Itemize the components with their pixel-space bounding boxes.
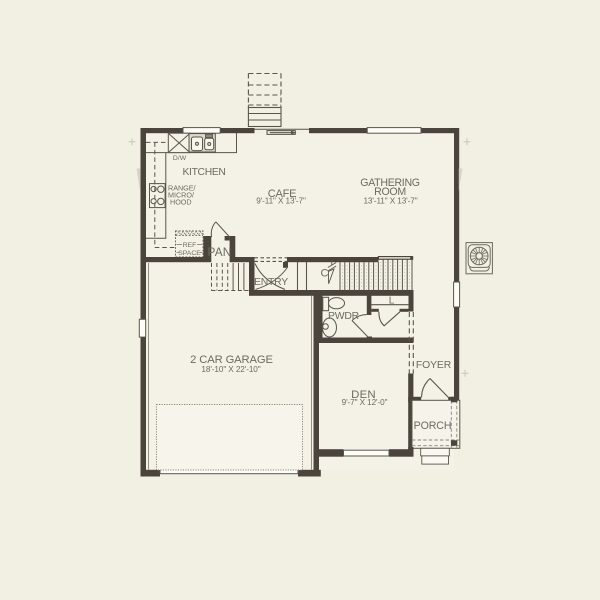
svg-text:SPACE: SPACE	[178, 250, 201, 257]
svg-text:9'-11" X 13'-7": 9'-11" X 13'-7"	[256, 197, 306, 206]
svg-text:FOYER: FOYER	[416, 360, 452, 371]
svg-text:PWDR: PWDR	[328, 311, 360, 322]
svg-text:ENTRY: ENTRY	[254, 277, 288, 288]
svg-text:HOOD: HOOD	[170, 198, 192, 207]
svg-text:C: C	[321, 268, 329, 280]
svg-text:REF: REF	[183, 242, 197, 249]
svg-text:L: L	[389, 296, 395, 307]
svg-text:9'-7" X 12'-0": 9'-7" X 12'-0"	[342, 398, 388, 407]
svg-text:D/W: D/W	[173, 155, 187, 162]
svg-text:KITCHEN: KITCHEN	[182, 167, 225, 178]
svg-text:13'-11" X 13'-7": 13'-11" X 13'-7"	[363, 196, 417, 205]
svg-text:PORCH: PORCH	[414, 420, 452, 432]
svg-text:18'-10" X 22'-10": 18'-10" X 22'-10"	[201, 365, 260, 374]
svg-text:PAN: PAN	[208, 245, 232, 259]
